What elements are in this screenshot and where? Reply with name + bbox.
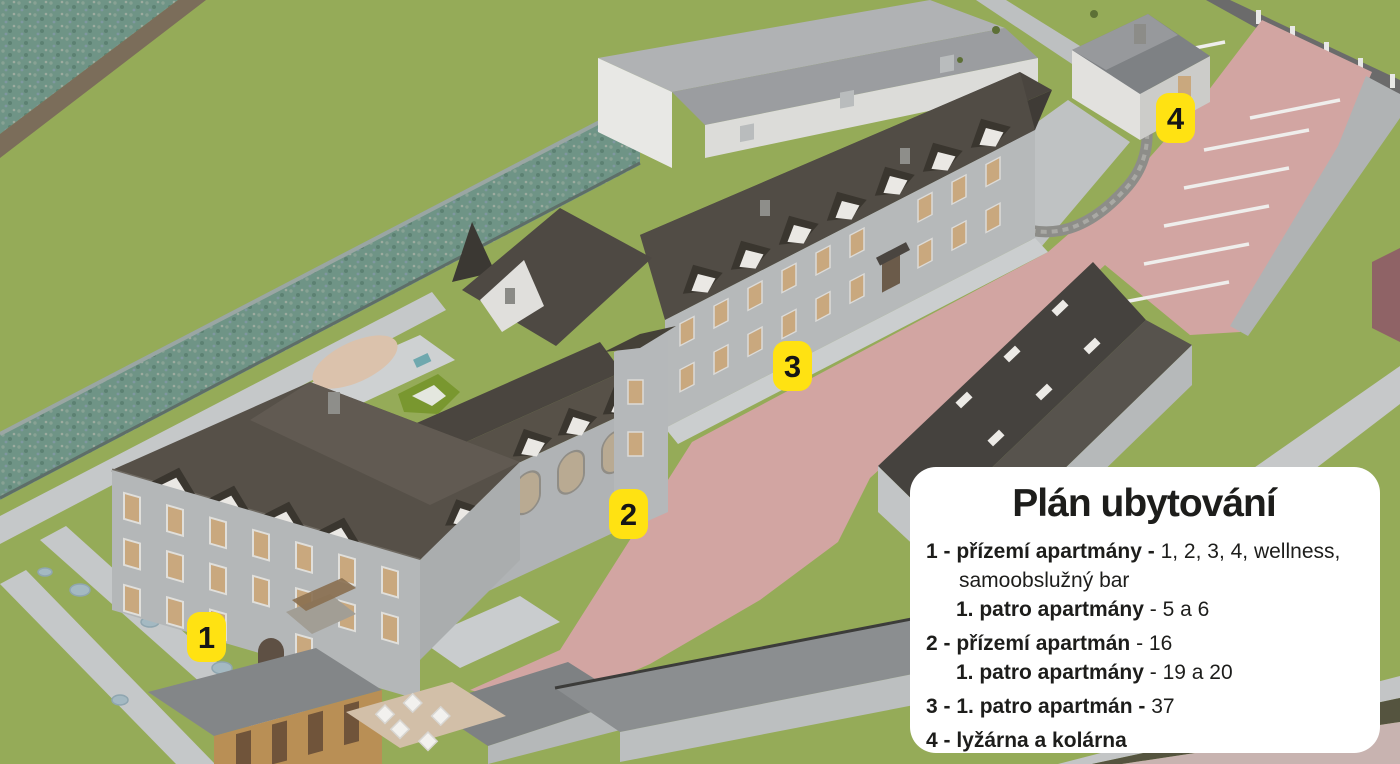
marker-2: 2: [609, 489, 648, 539]
marker-4: 4: [1156, 93, 1195, 143]
legend-row-1c: 1. patro apartmány - 5 a 6: [926, 595, 1362, 624]
legend-rows: 1 - přízemí apartmány - 1, 2, 3, 4, well…: [926, 537, 1362, 755]
legend-row-1b: samoobslužný bar: [926, 566, 1362, 595]
marker-3: 3: [773, 341, 812, 391]
legend-row-2: 2 - přízemí apartmán - 16: [926, 629, 1362, 658]
red-shed: [1372, 248, 1400, 342]
marker-1: 1: [187, 612, 226, 662]
legend-row-1: 1 - přízemí apartmány - 1, 2, 3, 4, well…: [926, 537, 1362, 566]
legend-row-4: 4 - lyžárna a kolárna: [926, 726, 1362, 755]
legend-row-2b: 1. patro apartmány - 19 a 20: [926, 658, 1362, 687]
legend-panel: Plán ubytování 1 - přízemí apartmány - 1…: [910, 467, 1380, 753]
legend-row-3: 3 - 1. patro apartmán - 37: [926, 692, 1362, 721]
legend-title: Plán ubytování: [926, 482, 1362, 526]
site-plan-illustration: 1 2 3 4 Plán ubytování 1 - přízemí apart…: [0, 0, 1400, 764]
